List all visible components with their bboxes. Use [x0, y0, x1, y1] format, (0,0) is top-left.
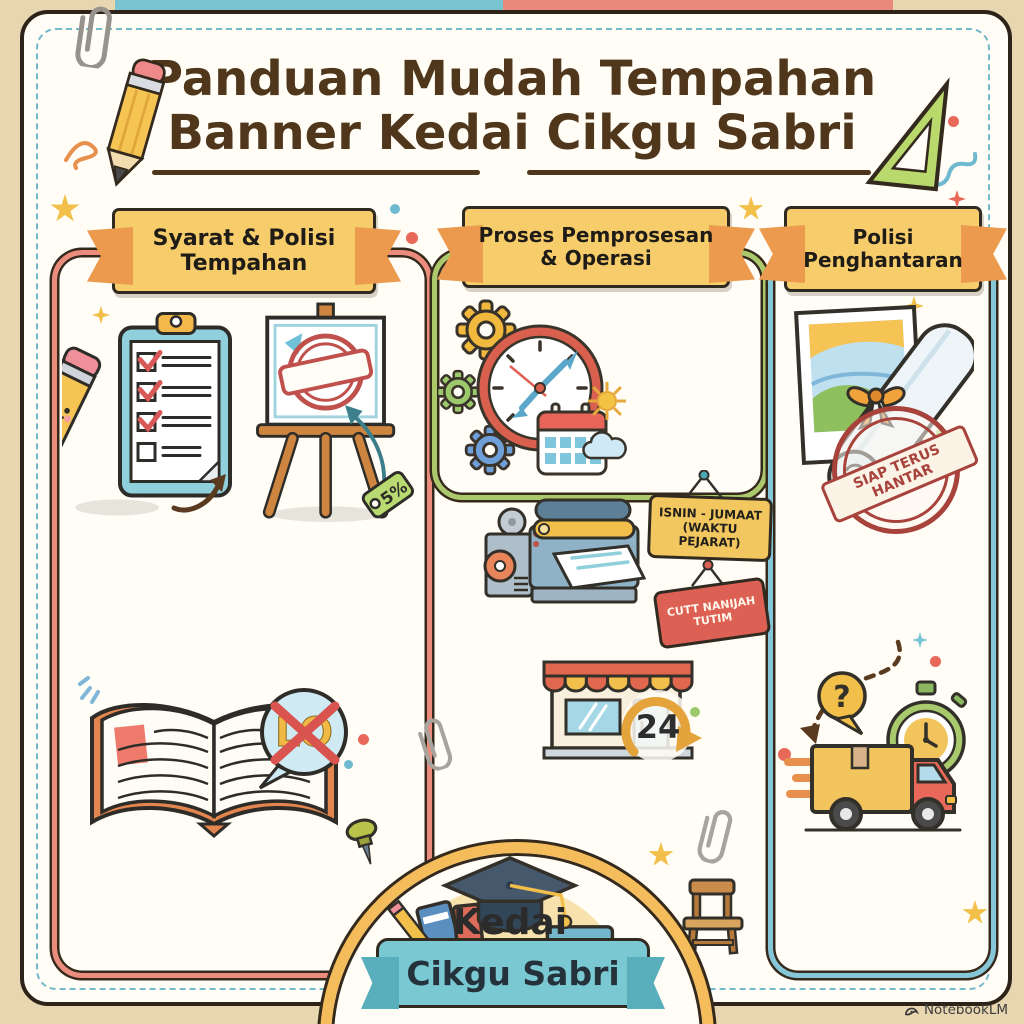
easel-stamp-icon: 5%	[240, 296, 420, 528]
delivery-truck-icon: ?	[784, 662, 976, 844]
cloud-icon	[582, 430, 628, 462]
logo-name-ribbon: Cikgu Sabri	[376, 938, 650, 1008]
svg-text:?: ?	[833, 680, 850, 715]
printing-press-icon	[478, 492, 646, 606]
left-column-header-banner: Syarat & Polisi Tempahan	[112, 208, 376, 294]
triangle-ruler-icon	[856, 68, 960, 199]
question-bubble-icon: ?	[819, 673, 865, 734]
title-underline-right	[527, 170, 871, 175]
watermark-label: NotebookLM	[924, 1002, 1008, 1018]
confetti-dot	[358, 734, 369, 745]
open-book-icon: LO	[72, 684, 357, 854]
infographic-page: Panduan Mudah Tempahan Banner Kedai Cikg…	[0, 0, 1024, 1024]
right-column-header-banner: Polisi Penghantaran	[784, 206, 982, 292]
sun-icon	[588, 382, 626, 420]
confetti-dot	[390, 204, 400, 214]
middle-column-header-banner: Proses Pemprosesan & Operasi	[462, 206, 730, 288]
paperclip-icon	[66, 0, 127, 71]
svg-text:24: 24	[636, 708, 681, 746]
watermark: NotebookLM	[904, 1002, 1008, 1018]
logo-name-bottom: Cikgu Sabri	[406, 954, 619, 993]
title-underline-left	[152, 170, 480, 175]
24-hour-arrow-icon: 24	[612, 682, 704, 768]
curved-arrow-icon	[168, 468, 230, 516]
notebooklm-logo-icon	[904, 1003, 919, 1018]
office-hours-sign: ISNIN - JUMAAT (WAKTU PEJARAT)	[647, 494, 773, 562]
confetti-dot	[406, 232, 418, 244]
